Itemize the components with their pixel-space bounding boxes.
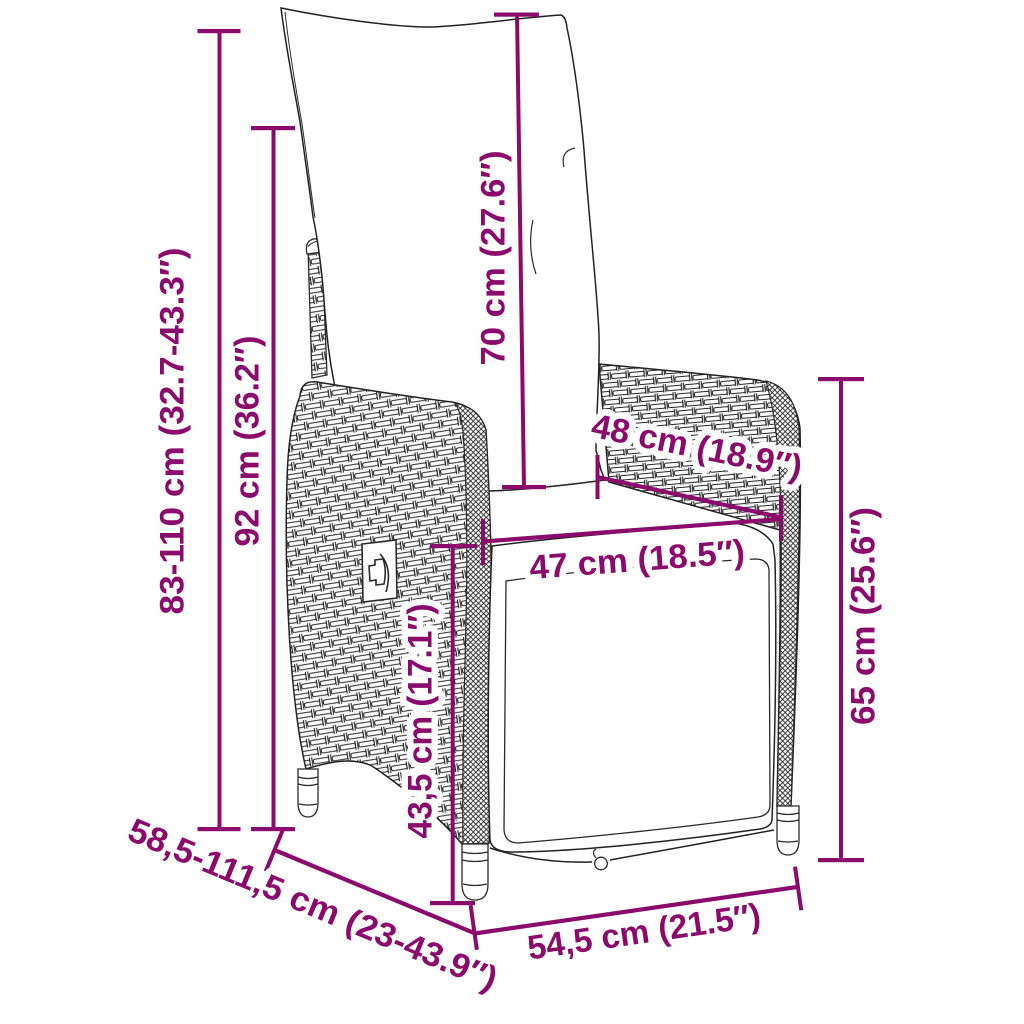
svg-text:92 cm (36.2″): 92 cm (36.2″): [229, 336, 267, 547]
svg-text:83-110 cm (32.7-43.3″): 83-110 cm (32.7-43.3″): [154, 247, 192, 614]
svg-text:43,5 cm (17.1″): 43,5 cm (17.1″): [402, 604, 440, 839]
svg-text:65 cm (25.6″): 65 cm (25.6″): [845, 507, 883, 725]
svg-text:70 cm (27.6″): 70 cm (27.6″): [475, 151, 513, 366]
